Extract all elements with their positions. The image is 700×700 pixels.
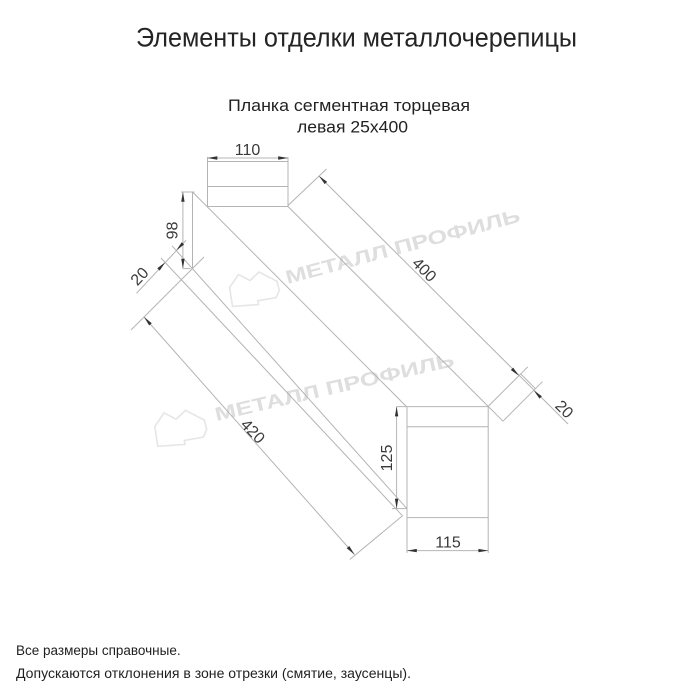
svg-text:левая 25х400: левая 25х400 [297,118,408,137]
svg-text:Элементы отделки металлочерепи: Элементы отделки металлочерепицы [136,21,577,52]
svg-text:115: 115 [435,535,461,552]
svg-text:98: 98 [165,222,182,240]
svg-text:110: 110 [235,142,261,159]
svg-text:Допускаются отклонения в зоне: Допускаются отклонения в зоне отрезки (с… [16,666,411,681]
svg-text:Планка сегментная торцевая: Планка сегментная торцевая [228,97,470,115]
svg-text:125: 125 [379,445,396,472]
svg-text:Все размеры справочные.: Все размеры справочные. [16,643,181,658]
